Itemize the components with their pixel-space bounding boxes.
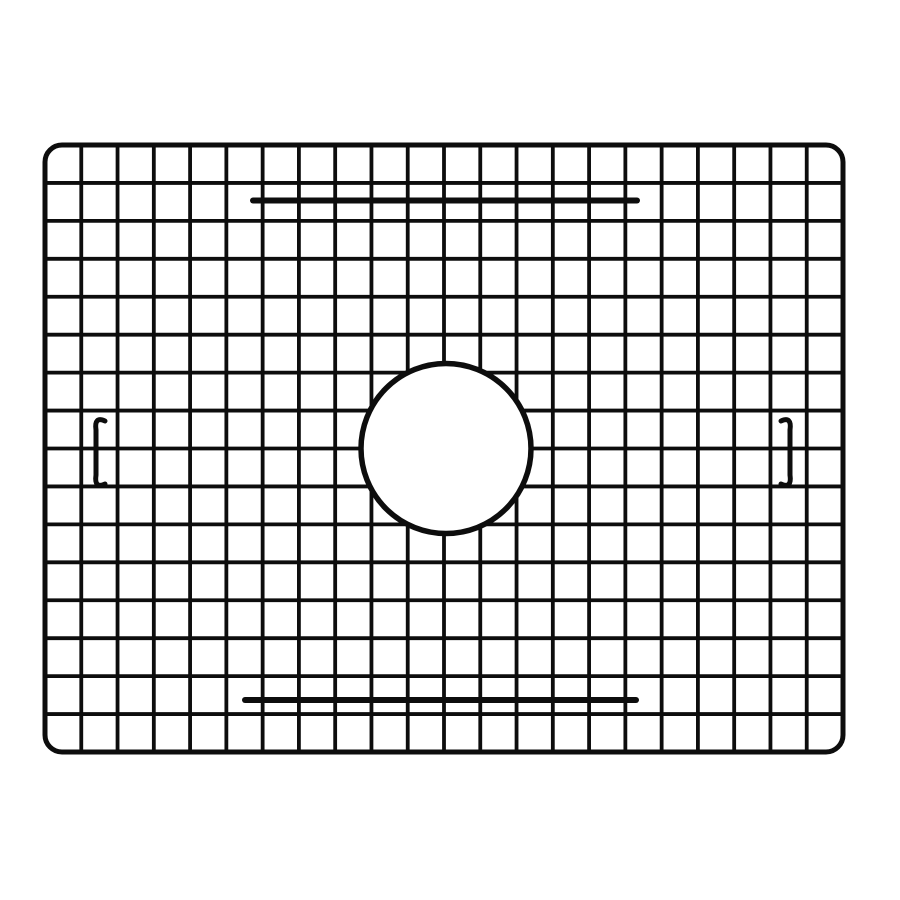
product-image-canvas [0, 0, 900, 900]
sink-grid-illustration [0, 0, 900, 900]
drain-opening [361, 364, 531, 534]
